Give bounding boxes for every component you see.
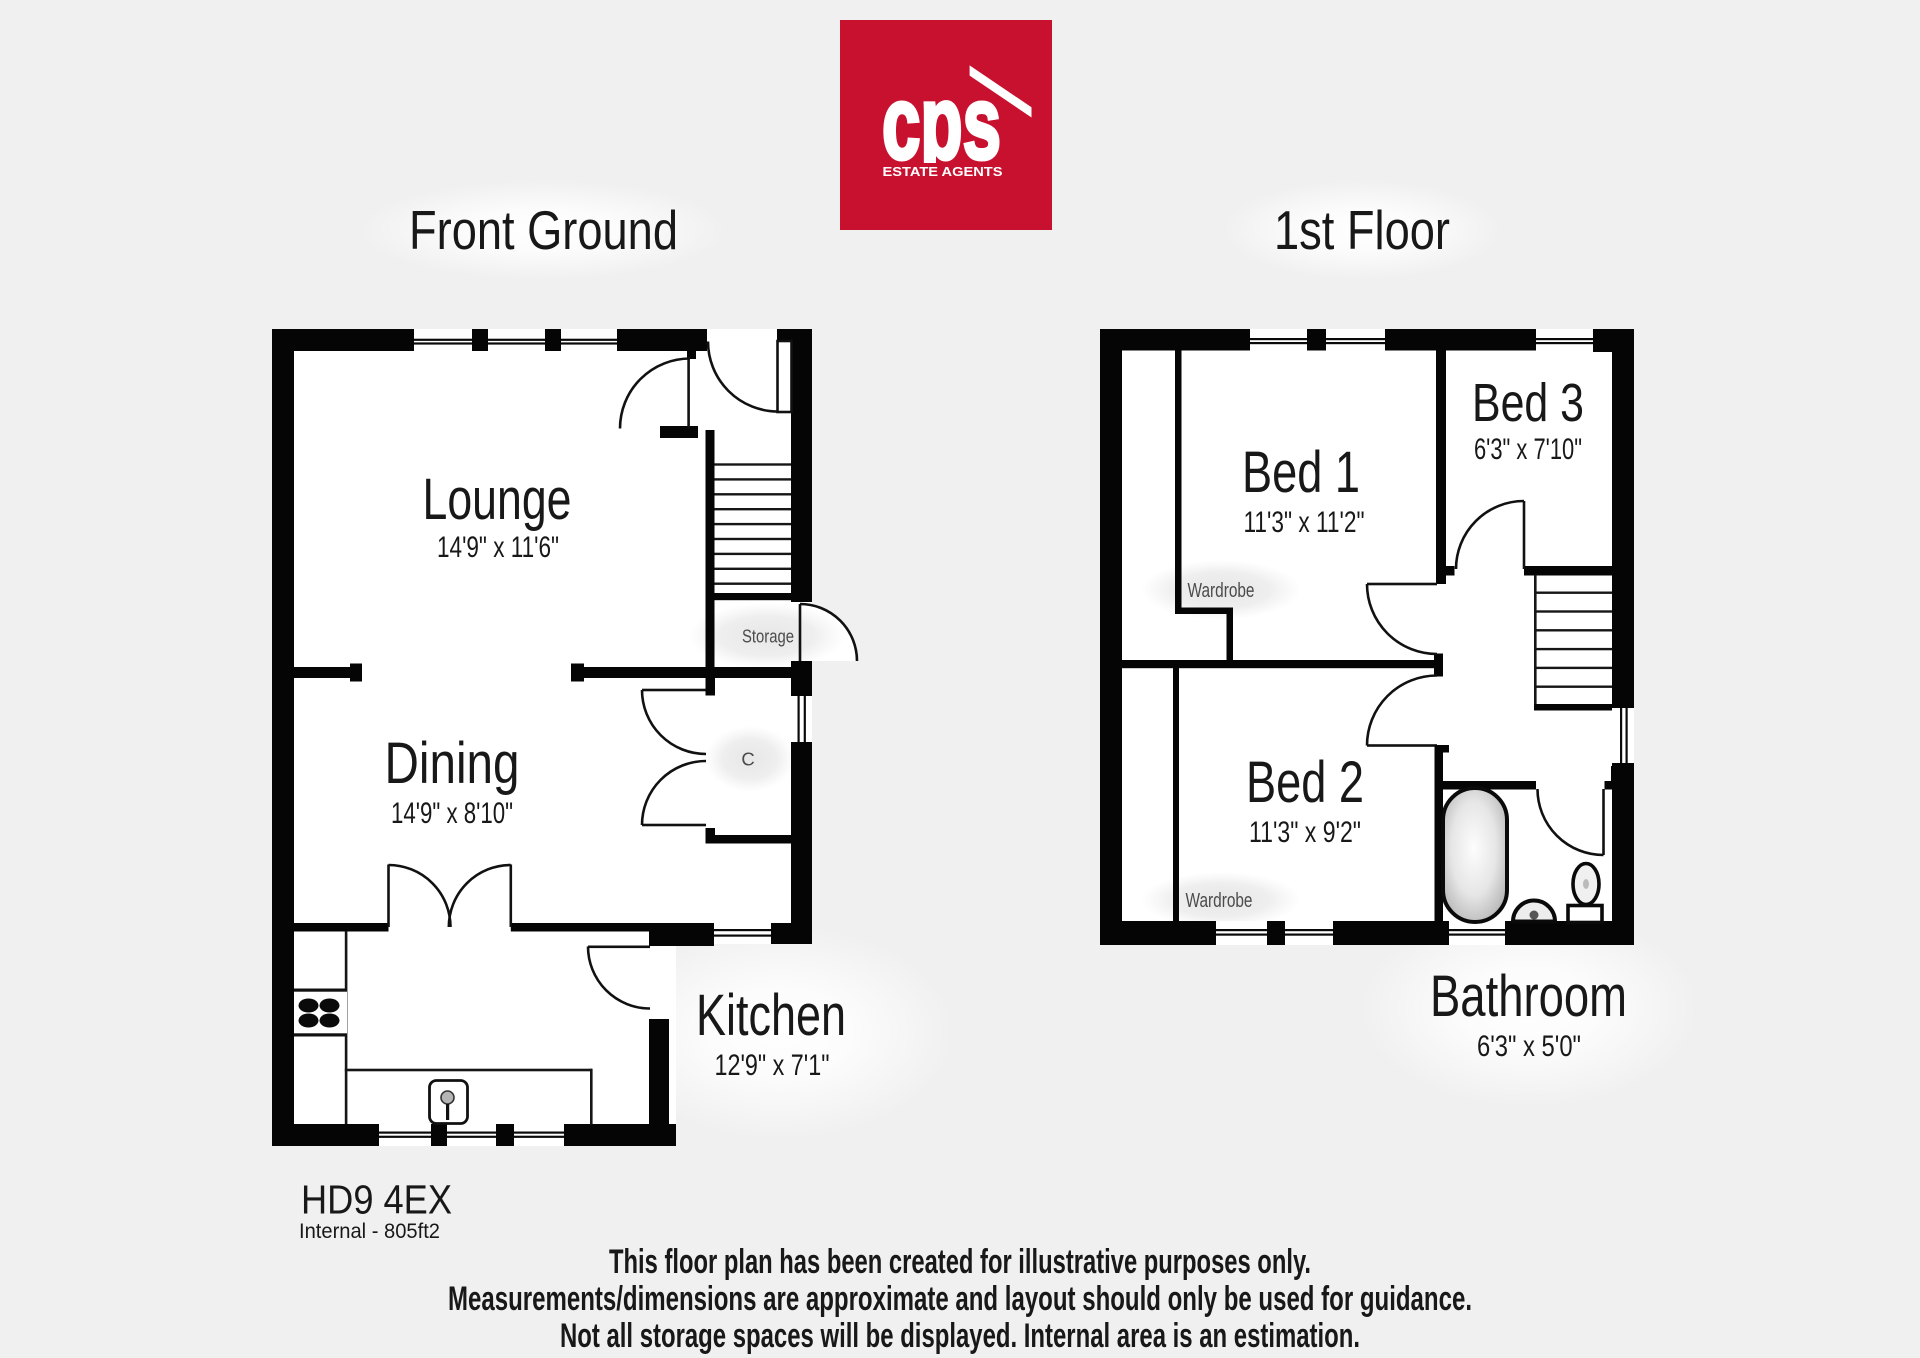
svg-text:11'3" x 9'2": 11'3" x 9'2"	[1249, 816, 1361, 849]
svg-text:Measurements/dimensions are ap: Measurements/dimensions are approximate …	[448, 1280, 1472, 1318]
svg-text:Bathroom: Bathroom	[1430, 964, 1627, 1029]
svg-text:ESTATE AGENTS: ESTATE AGENTS	[883, 164, 1003, 179]
svg-text:11'3" x 11'2": 11'3" x 11'2"	[1244, 506, 1365, 539]
svg-text:Dining: Dining	[385, 731, 520, 796]
svg-text:Wardrobe: Wardrobe	[1188, 580, 1255, 602]
svg-text:This floor plan has been creat: This floor plan has been created for ill…	[609, 1243, 1311, 1281]
svg-text:Kitchen: Kitchen	[696, 983, 846, 1048]
svg-text:C: C	[741, 749, 754, 770]
svg-text:12'9" x 7'1": 12'9" x 7'1"	[715, 1049, 830, 1082]
svg-text:Bed 1: Bed 1	[1242, 440, 1360, 505]
svg-text:Bed 3: Bed 3	[1472, 373, 1584, 433]
svg-text:14'9" x 11'6": 14'9" x 11'6"	[437, 531, 559, 564]
svg-text:Lounge: Lounge	[423, 467, 572, 532]
svg-text:Not all storage spaces will be: Not all storage spaces will be displayed…	[560, 1317, 1360, 1355]
svg-text:Internal - 805ft2: Internal - 805ft2	[299, 1219, 440, 1243]
svg-text:6'3" x 5'0": 6'3" x 5'0"	[1477, 1030, 1581, 1063]
svg-text:6'3" x 7'10": 6'3" x 7'10"	[1474, 433, 1582, 466]
svg-text:1st Floor: 1st Floor	[1274, 199, 1450, 261]
svg-text:Bed 2: Bed 2	[1246, 750, 1364, 815]
svg-text:Storage: Storage	[742, 626, 794, 647]
svg-text:Wardrobe: Wardrobe	[1186, 890, 1253, 912]
svg-text:HD9 4EX: HD9 4EX	[301, 1177, 452, 1223]
svg-text:14'9" x 8'10": 14'9" x 8'10"	[391, 797, 513, 830]
svg-text:Front Ground: Front Ground	[409, 199, 678, 261]
